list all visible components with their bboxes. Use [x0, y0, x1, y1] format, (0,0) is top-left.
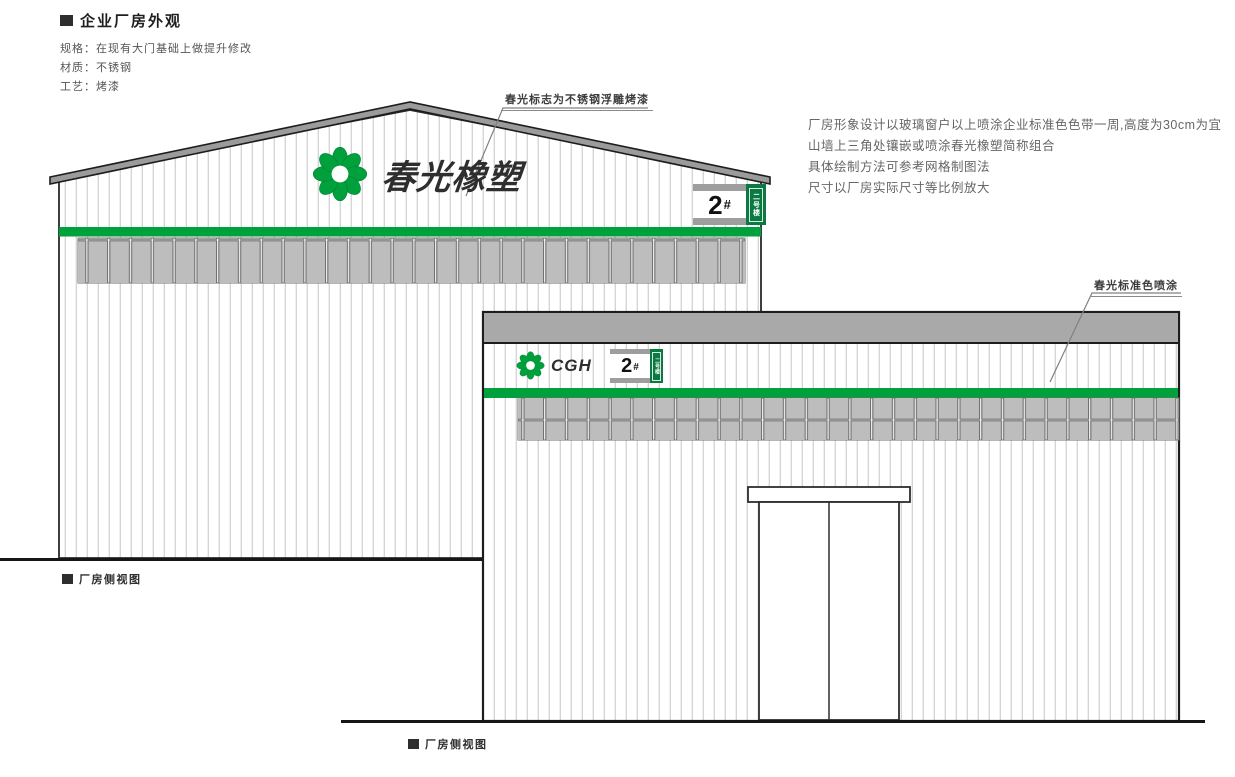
right-building-color-band: [484, 388, 1178, 398]
page-title: 企业厂房外观: [80, 10, 182, 31]
vi-manual-page: 企业厂房外观 规格：在现有大门基础上做提升修改 材质：不锈钢 工艺：烤漆 厂房形…: [0, 0, 1235, 777]
left-view-caption: 厂房侧视图: [62, 571, 142, 587]
right-building-window-slats: [518, 398, 1179, 440]
right-building-number-sign: 2 # 二号楼: [610, 349, 663, 383]
left-building-color-band: [59, 227, 761, 237]
sign-hash: #: [724, 198, 731, 211]
sign-vertical-label: 二号楼: [654, 358, 659, 375]
brand-flower-icon: [516, 351, 545, 380]
sign-green-strip: 二号楼: [650, 349, 663, 383]
brand-flower-icon: [312, 146, 368, 202]
sign-hash: #: [633, 363, 639, 373]
title-marker-icon: [60, 15, 73, 26]
design-notes: 厂房形象设计以玻璃窗户以上喷涂企业标准色色带一周,高度为30cm为宜 山墙上三角…: [808, 115, 1228, 199]
standard-color-callout: 春光标准色喷涂: [1090, 277, 1182, 297]
caption-marker-icon: [408, 739, 419, 749]
sign-green-strip: 二号楼: [746, 184, 766, 225]
note-line-4: 尺寸以厂房实际尺寸等比例放大: [808, 178, 1228, 199]
sign-strip-frame: 二号楼: [749, 188, 763, 222]
left-building-logo: 春光橡塑: [312, 146, 522, 202]
sign-number: 2: [708, 192, 722, 218]
sign-number-panel: 2 #: [610, 349, 650, 383]
caption-text: 厂房侧视图: [425, 736, 488, 752]
sign-number: 2: [621, 356, 632, 376]
note-line-2: 山墙上三角处镶嵌或喷涂春光橡塑简称组合: [808, 136, 1228, 157]
left-logo-wordmark: 春光橡塑: [379, 150, 524, 199]
right-view-caption: 厂房侧视图: [408, 736, 488, 752]
sign-strip-frame: 二号楼: [652, 352, 661, 381]
header: 企业厂房外观 规格：在现有大门基础上做提升修改 材质：不锈钢 工艺：烤漆: [60, 10, 252, 97]
spec-line-size: 规格：在现有大门基础上做提升修改: [60, 40, 252, 59]
door-lintel: [748, 487, 910, 502]
sign-vertical-label: 二号楼: [753, 193, 760, 217]
caption-marker-icon: [62, 574, 73, 584]
caption-text: 厂房侧视图: [79, 571, 142, 587]
right-building-parapet: [483, 312, 1179, 343]
left-building-window-slats: [78, 238, 745, 283]
right-building-logo: CGH: [516, 351, 592, 380]
spec-line-process: 工艺：烤漆: [60, 78, 252, 97]
left-building-number-sign: 2 # 二号楼: [693, 184, 766, 225]
note-line-3: 具体绘制方法可参考网格制图法: [808, 157, 1228, 178]
right-logo-wordmark: CGH: [551, 356, 592, 376]
sign-number-panel: 2 #: [693, 184, 746, 225]
logo-material-callout: 春光标志为不锈钢浮雕烤漆: [501, 91, 653, 111]
note-line-1: 厂房形象设计以玻璃窗户以上喷涂企业标准色色带一周,高度为30cm为宜: [808, 115, 1228, 136]
spec-line-material: 材质：不锈钢: [60, 59, 252, 78]
